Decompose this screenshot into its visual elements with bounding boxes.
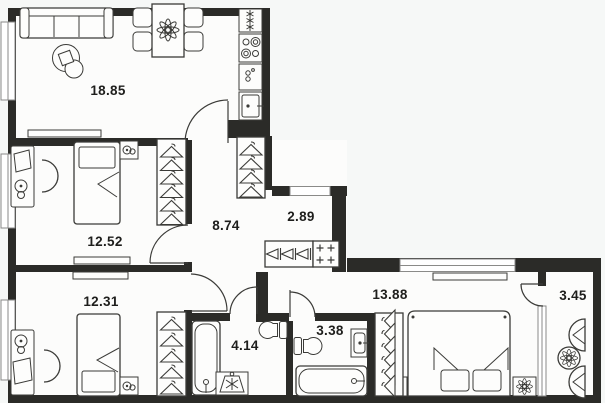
room-area-label: 12.31 [83, 294, 118, 309]
kitchen-unit-icon [239, 9, 264, 120]
bed-icon [77, 314, 120, 396]
floor-plan: 18.85 12.52 8.74 2.89 12.31 4.14 3.38 13… [0, 0, 605, 403]
window-living-room [1, 22, 15, 100]
floor-plan-page: 18.85 12.52 8.74 2.89 12.31 4.14 3.38 13… [0, 0, 605, 403]
room-area-label: 18.85 [90, 83, 125, 98]
hall-wardrobe-icon [237, 137, 265, 198]
washbasin-icon [216, 372, 248, 395]
room-area-label: 8.74 [212, 218, 240, 233]
room-area-label: 3.38 [316, 323, 344, 338]
washbasin-icon [351, 329, 369, 357]
nightstand-icon [120, 141, 138, 159]
window-bedroom-master [400, 259, 515, 272]
nightstand-icon [513, 377, 536, 396]
drawer-cabinet-icon [313, 241, 339, 267]
bed-icon [74, 142, 120, 224]
kitchen-sink-icon [239, 64, 262, 90]
desk-icon [11, 330, 34, 395]
shoe-cabinet-icon [265, 241, 313, 267]
tv-console-icon [73, 272, 128, 279]
room-area-label: 13.88 [372, 287, 407, 302]
tv-console-icon [74, 257, 130, 264]
plant-table-icon [558, 347, 580, 369]
toilet-icon [294, 338, 322, 355]
desk-icon [11, 146, 34, 207]
room-area-label: 2.89 [287, 209, 314, 224]
sofa-icon [20, 8, 113, 38]
double-bed-icon [408, 311, 510, 396]
tv-console-icon [433, 273, 507, 280]
room-area-label: 3.45 [559, 288, 587, 303]
nightstand-icon [120, 377, 138, 395]
room-area-label: 12.52 [87, 234, 122, 249]
toilet-icon [259, 322, 287, 339]
tv-console-icon [28, 130, 101, 137]
room-area-label: 4.14 [231, 338, 259, 353]
bathtub-icon [296, 366, 367, 396]
wardrobe-icon [157, 139, 186, 225]
wardrobe-icon [375, 310, 403, 397]
wardrobe-icon [157, 312, 186, 396]
entrance-door [290, 187, 330, 196]
balcony-glazing [538, 306, 546, 396]
